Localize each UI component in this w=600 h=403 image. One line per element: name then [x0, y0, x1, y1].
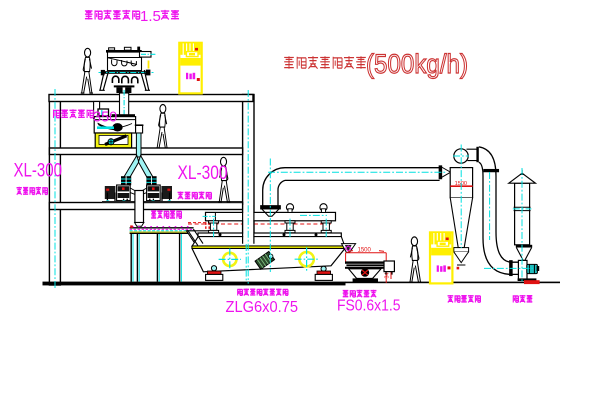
svg-text:XL-300: XL-300: [14, 160, 63, 181]
svg-text:1.5: 1.5: [140, 8, 161, 25]
svg-text:1500: 1500: [358, 247, 372, 253]
svg-text:ZLG6x0.75: ZLG6x0.75: [226, 299, 299, 316]
svg-text:FS0.6x1.5: FS0.6x1.5: [337, 297, 401, 314]
svg-text:350: 350: [93, 109, 117, 125]
svg-text:XL-300: XL-300: [178, 163, 228, 184]
svg-text:(500kg/h): (500kg/h): [366, 49, 468, 79]
